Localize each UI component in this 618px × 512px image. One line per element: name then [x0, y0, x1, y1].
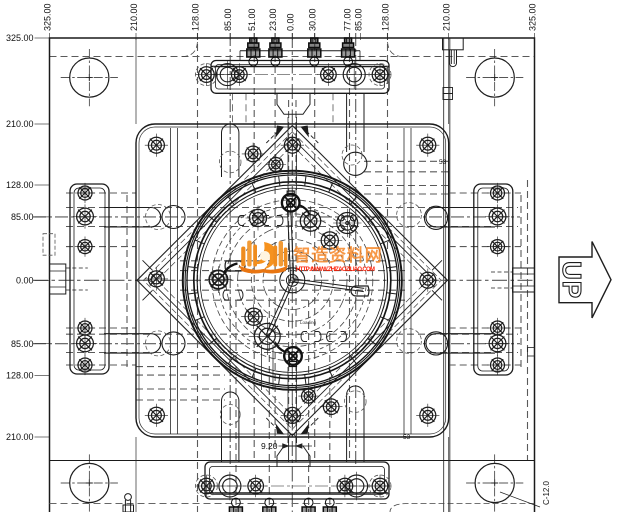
- svg-text:53: 53: [439, 159, 447, 166]
- svg-text:210.00: 210.00: [6, 432, 34, 442]
- svg-text:23.00: 23.00: [268, 8, 278, 31]
- svg-text:85.00: 85.00: [11, 212, 34, 222]
- svg-text:85.00: 85.00: [11, 339, 34, 349]
- svg-text:77.00: 77.00: [343, 8, 353, 31]
- svg-text:Loading: Loading: [300, 320, 317, 325]
- svg-text:210.00: 210.00: [129, 3, 139, 31]
- svg-text:53: 53: [403, 434, 411, 441]
- svg-text:HTTP://WWW.ZHIZAOZILIAO.COM: HTTP://WWW.ZHIZAOZILIAO.COM: [296, 267, 375, 273]
- svg-text:0.00: 0.00: [16, 276, 34, 286]
- svg-text:128.00: 128.00: [6, 371, 34, 381]
- svg-text:128.00: 128.00: [381, 3, 391, 31]
- svg-text:85.00: 85.00: [223, 8, 233, 31]
- svg-text:智造资料网: 智造资料网: [294, 245, 383, 265]
- svg-text:210.00: 210.00: [442, 3, 452, 31]
- svg-text:210.00: 210.00: [6, 119, 34, 129]
- svg-text:128.00: 128.00: [6, 180, 34, 190]
- svg-text:C-12.0: C-12.0: [542, 480, 551, 505]
- svg-text:51.00: 51.00: [247, 8, 257, 31]
- svg-text:325.00: 325.00: [43, 3, 53, 31]
- svg-text:325.00: 325.00: [528, 3, 538, 31]
- svg-text:325.00: 325.00: [6, 33, 34, 43]
- svg-text:UP: UP: [557, 261, 587, 299]
- svg-text:128.00: 128.00: [191, 3, 201, 31]
- svg-text:9.20: 9.20: [261, 441, 278, 451]
- svg-text:30.00: 30.00: [308, 8, 318, 31]
- svg-text:85.00: 85.00: [354, 8, 364, 31]
- svg-text:0.00: 0.00: [285, 13, 295, 31]
